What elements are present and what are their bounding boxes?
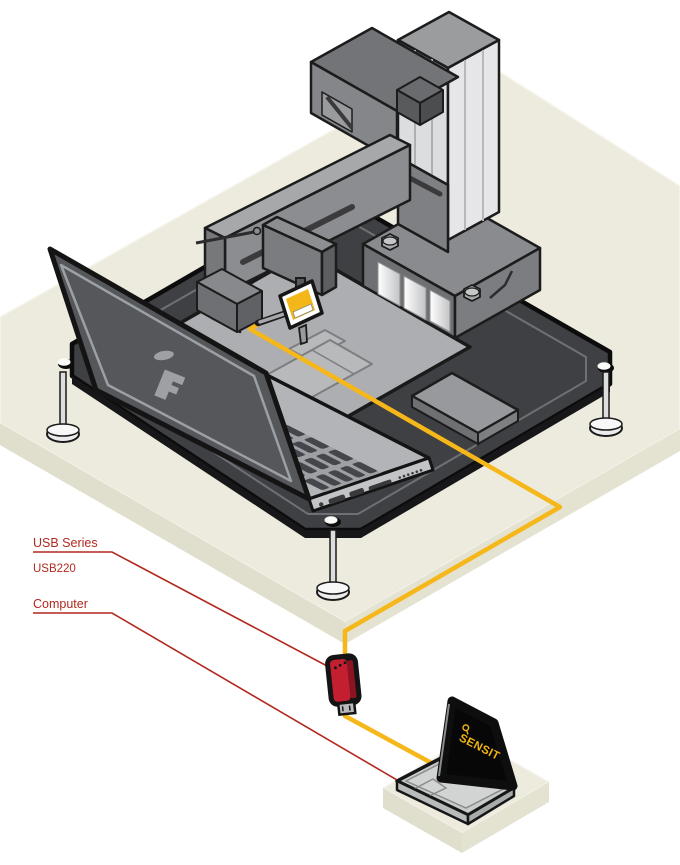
hex-bolt: [464, 285, 480, 301]
adapter-connector: [338, 702, 355, 715]
usb-series-label: USB Series: [33, 536, 98, 550]
callout-labels: USB Series USB220 Computer: [33, 536, 98, 611]
diagram-canvas: SENSIT USB Series USB220 Computer: [0, 0, 680, 865]
tower-face-right: [448, 40, 499, 240]
usb220-label: USB220: [33, 563, 76, 575]
usb-adapter: [324, 652, 363, 715]
adjust-knob: [254, 228, 261, 235]
hex-bolt: [382, 234, 398, 250]
probe-tip: [299, 325, 307, 344]
test-machine: [196, 12, 540, 338]
computer-label: Computer: [33, 597, 88, 611]
tower-column: [398, 12, 499, 252]
isometric-illustration: SENSIT USB Series USB220 Computer: [0, 0, 680, 865]
